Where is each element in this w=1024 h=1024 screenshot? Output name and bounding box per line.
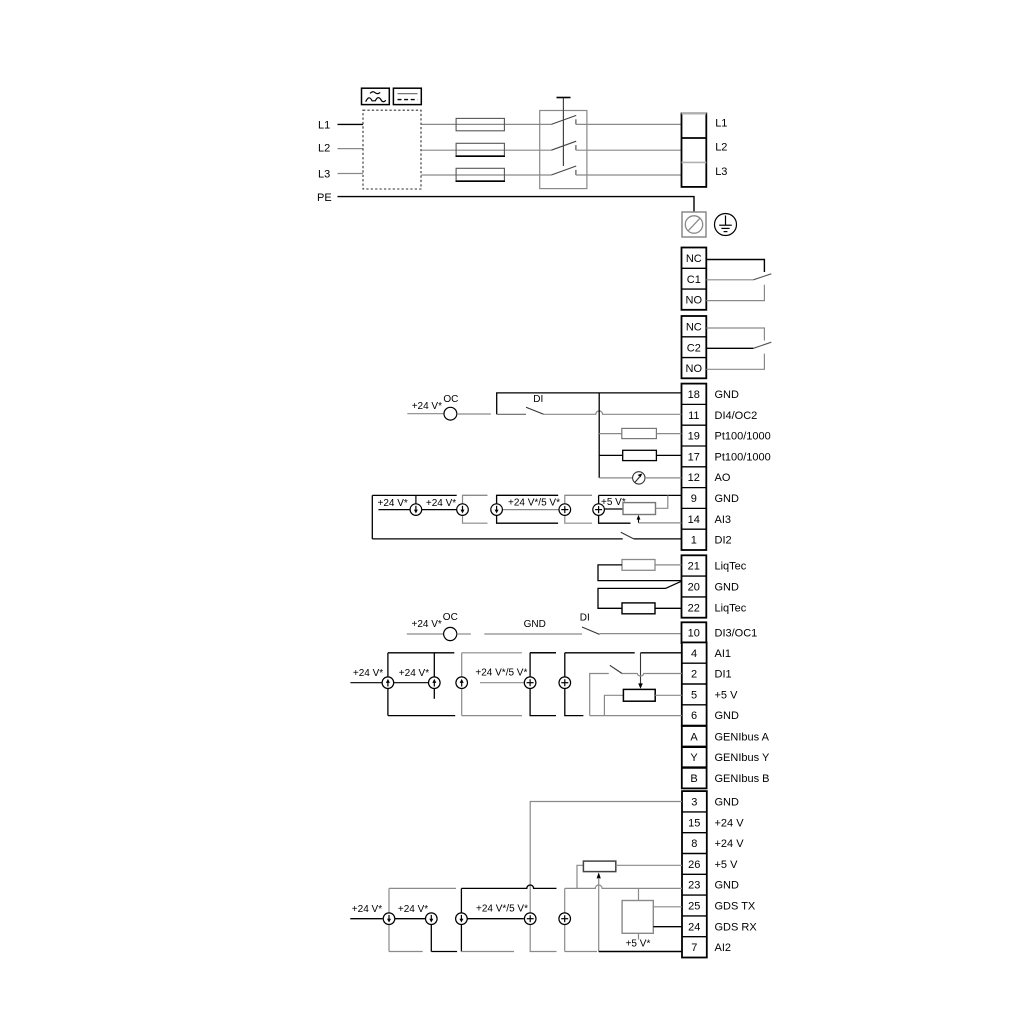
svg-text:11: 11 (688, 410, 699, 422)
svg-text:AO: AO (715, 472, 731, 484)
svg-text:+24 V*/5 V*: +24 V*/5 V* (475, 667, 527, 678)
svg-text:NC: NC (686, 322, 702, 334)
svg-text:+5 V*: +5 V* (626, 939, 651, 950)
svg-text:21: 21 (688, 561, 700, 573)
svg-text:LiqTec: LiqTec (715, 561, 747, 573)
svg-text:15: 15 (688, 817, 700, 829)
svg-text:+5 V: +5 V (715, 859, 739, 871)
svg-text:DI: DI (533, 394, 543, 405)
svg-text:LiqTec: LiqTec (715, 602, 747, 614)
svg-text:AI2: AI2 (715, 942, 732, 954)
svg-text:AI1: AI1 (715, 648, 732, 660)
svg-text:PE: PE (317, 192, 332, 204)
svg-text:GENIbus Y: GENIbus Y (715, 752, 770, 764)
svg-text:+24 V*: +24 V* (378, 498, 408, 509)
svg-text:+24 V*: +24 V* (353, 668, 383, 679)
svg-text:AI3: AI3 (715, 514, 732, 526)
svg-text:GND: GND (715, 493, 740, 505)
svg-text:+24 V*: +24 V* (399, 668, 429, 679)
svg-text:+24 V: +24 V (715, 817, 745, 829)
svg-text:14: 14 (688, 514, 700, 526)
svg-text:L1: L1 (715, 118, 727, 130)
svg-text:DI4/OC2: DI4/OC2 (715, 410, 758, 422)
svg-text:L2: L2 (318, 142, 330, 154)
svg-text:L3: L3 (715, 166, 727, 178)
svg-text:DI3/OC1: DI3/OC1 (715, 628, 758, 640)
svg-text:+24 V*: +24 V* (412, 401, 442, 412)
svg-text:+24 V*/5 V*: +24 V*/5 V* (476, 903, 528, 914)
svg-text:Pt100/1000: Pt100/1000 (715, 451, 771, 463)
svg-text:Pt100/1000: Pt100/1000 (715, 431, 771, 443)
svg-text:GDS TX: GDS TX (715, 901, 756, 913)
svg-text:19: 19 (688, 431, 700, 443)
svg-text:L3: L3 (318, 168, 330, 180)
svg-text:NO: NO (686, 363, 703, 375)
svg-text:18: 18 (688, 389, 700, 401)
svg-text:+24 V*: +24 V* (412, 619, 442, 630)
svg-text:GENIbus B: GENIbus B (715, 773, 770, 785)
svg-text:B: B (690, 773, 697, 785)
svg-text:GND: GND (715, 582, 740, 594)
svg-text:NC: NC (686, 253, 702, 265)
svg-text:+5 V*: +5 V* (601, 497, 626, 508)
svg-text:+24 V*: +24 V* (426, 498, 456, 509)
svg-text:GND: GND (715, 880, 740, 892)
svg-text:GENIbus A: GENIbus A (715, 731, 770, 743)
svg-text:17: 17 (688, 451, 700, 463)
svg-text:7: 7 (691, 942, 697, 954)
svg-text:A: A (690, 731, 698, 743)
svg-text:+5 V: +5 V (715, 689, 739, 701)
svg-text:DI1: DI1 (715, 669, 732, 681)
svg-text:+24 V*: +24 V* (352, 904, 382, 915)
svg-text:OC: OC (443, 394, 458, 405)
svg-text:C1: C1 (687, 274, 701, 286)
svg-text:GND: GND (715, 797, 740, 809)
svg-text:L1: L1 (318, 119, 330, 131)
svg-text:L2: L2 (715, 142, 727, 154)
svg-text:NO: NO (686, 295, 703, 307)
svg-text:26: 26 (688, 859, 700, 871)
svg-text:C2: C2 (687, 342, 701, 354)
svg-text:+24 V: +24 V (715, 838, 745, 850)
svg-text:25: 25 (688, 901, 700, 913)
svg-text:GDS RX: GDS RX (715, 921, 758, 933)
svg-text:1: 1 (691, 535, 697, 547)
svg-text:3: 3 (691, 797, 697, 809)
svg-text:Y: Y (690, 752, 698, 764)
svg-text:24: 24 (688, 921, 700, 933)
svg-text:2: 2 (691, 669, 697, 681)
svg-text:4: 4 (691, 648, 697, 660)
svg-text:DI: DI (580, 613, 590, 624)
svg-text:GND: GND (524, 619, 546, 630)
svg-text:12: 12 (688, 472, 700, 484)
svg-text:23: 23 (688, 880, 700, 892)
svg-text:5: 5 (691, 689, 697, 701)
svg-text:+24 V*/5 V*: +24 V*/5 V* (508, 497, 560, 508)
svg-text:8: 8 (691, 838, 697, 850)
svg-text:OC: OC (443, 612, 458, 623)
svg-text:GND: GND (715, 710, 740, 722)
svg-text:6: 6 (691, 710, 697, 722)
svg-text:22: 22 (688, 602, 700, 614)
svg-text:DI2: DI2 (715, 535, 732, 547)
svg-text:GND: GND (715, 389, 740, 401)
svg-text:10: 10 (688, 628, 700, 640)
svg-text:9: 9 (691, 493, 697, 505)
svg-text:20: 20 (688, 582, 700, 594)
svg-text:+24 V*: +24 V* (398, 904, 428, 915)
